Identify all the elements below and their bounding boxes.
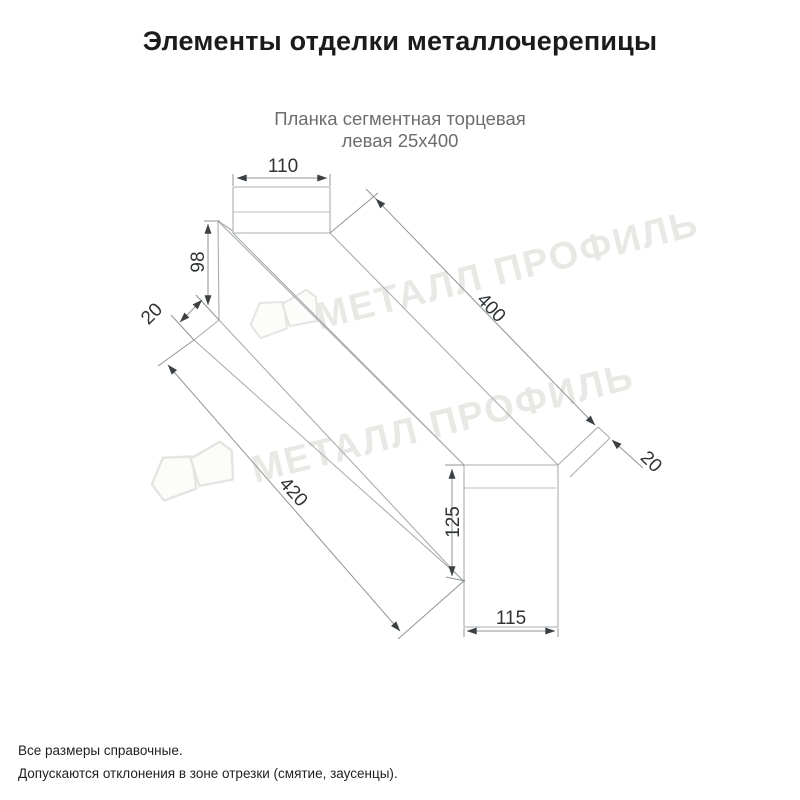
footer-notes: Все размеры справочные. Допускаются откл… <box>18 739 398 785</box>
watermark-text: МЕТАЛЛ ПРОФИЛЬ <box>312 202 704 338</box>
dim-label-left-hem: 20 <box>137 299 167 329</box>
watermark-text: МЕТАЛЛ ПРОФИЛЬ <box>247 356 639 492</box>
product-drawing-page: Элементы отделки металлочерепицы Планка … <box>0 0 800 800</box>
technical-drawing: МЕТАЛЛ ПРОФИЛЬ МЕТАЛЛ ПРОФИЛЬ <box>0 0 800 800</box>
dim-label-right-height: 125 <box>443 506 464 538</box>
metalprofil-logo-icon <box>146 439 240 502</box>
dim-label-left-height: 98 <box>188 251 209 272</box>
dim-label-bottom-width: 115 <box>496 608 526 629</box>
dim-label-right-hem: 20 <box>636 447 666 477</box>
footer-note-1: Все размеры справочные. <box>18 739 398 762</box>
watermark-upper: МЕТАЛЛ ПРОФИЛЬ <box>246 194 703 354</box>
footer-note-2: Допускаются отклонения в зоне отрезки (с… <box>18 762 398 785</box>
dim-label-top-width: 110 <box>268 156 298 177</box>
watermark-lower: МЕТАЛЛ ПРОФИЛЬ <box>146 341 639 516</box>
